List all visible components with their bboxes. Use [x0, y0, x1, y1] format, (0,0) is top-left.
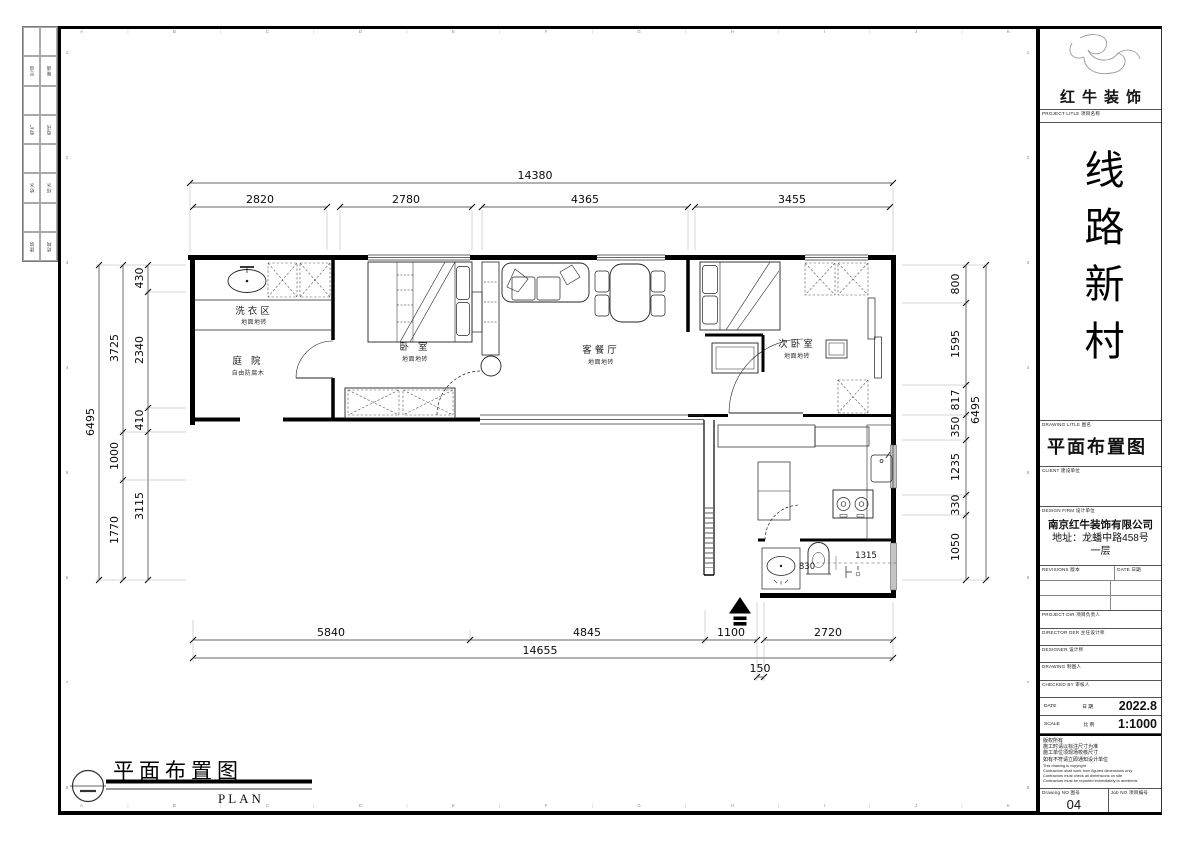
- job-no-label: Job NO 项目编号: [1109, 789, 1161, 797]
- dim-label: 3725: [108, 334, 121, 362]
- date-row: DATE 日 期 2022.8: [1040, 698, 1161, 716]
- bathroom-fixtures: [762, 543, 896, 590]
- scale-label-cn: 比 例: [1083, 721, 1094, 728]
- project-name-section: 线路新村: [1040, 123, 1161, 421]
- number-row: Drawing NO 图号 04 Job NO 项目编号: [1040, 789, 1161, 812]
- kitchen-fixtures: [718, 425, 893, 540]
- room-finish: 地面地砖: [241, 318, 267, 326]
- dim-label: 5840: [317, 626, 345, 639]
- drawing-no-value: 04: [1040, 797, 1108, 812]
- footer-title: 平面布置图: [113, 759, 243, 783]
- dim-label: 1050: [949, 533, 962, 561]
- drawing-title: 平面布置图: [1040, 429, 1161, 459]
- living-dining-furniture: [502, 263, 665, 322]
- scale-label-en: SCALE: [1044, 722, 1060, 727]
- date-label-cn: 日 期: [1082, 703, 1093, 710]
- footer-subtitle: PLAN: [218, 791, 264, 806]
- project-label: PROJECT LITLE 项目名称: [1040, 110, 1161, 118]
- drawing-sheet: 空调 暖通 电气 电讯 给水 排水 建筑 结构 A|B|C|D|E|F|G|H|…: [0, 0, 1200, 852]
- room-finish: 地面地砖: [588, 358, 614, 366]
- floor-plan-svg: 14380 2820 2780 4365 3455 5840 4845 1100…: [0, 0, 1200, 852]
- dim-label: 350: [949, 417, 962, 438]
- room-name: 庭 院: [232, 355, 263, 367]
- copyright-line: Contractors must be reported immediately…: [1043, 778, 1158, 783]
- second-bedroom-furniture: [700, 262, 882, 413]
- dim-label: 1000: [108, 442, 121, 470]
- dim-label: 6495: [84, 408, 97, 436]
- drawing-title-label: DRAWING LITLE 图名: [1040, 421, 1161, 429]
- checked-by-label: CHECKED BY 审核人: [1040, 681, 1161, 689]
- room-labels: 洗衣区 地面地砖 庭 院 自由防腐木 卧 室 地面地砖 客餐厅 地面地砖 次卧室…: [232, 305, 816, 377]
- dim-label: 3115: [133, 492, 146, 520]
- dim-label: 2780: [392, 193, 420, 206]
- company-logo-icon: [1046, 30, 1156, 86]
- dim-label: 1315: [855, 551, 877, 561]
- dim-label: 14655: [523, 644, 558, 657]
- room-name: 次卧室: [778, 338, 816, 350]
- firm-name: 南京红牛装饰有限公司: [1040, 517, 1161, 532]
- dimension-labels: 14380 2820 2780 4365 3455 5840 4845 1100…: [84, 169, 982, 675]
- dim-label: 14380: [518, 169, 553, 182]
- revisions-date-label: DATE 日期: [1115, 566, 1161, 580]
- room-finish: 地面地砖: [402, 355, 428, 363]
- dim-label: 430: [133, 268, 146, 289]
- dim-label: 150: [750, 662, 771, 675]
- dim-label: 1770: [108, 516, 121, 544]
- copyright-block: 版权所有 施工时请以标注尺寸为准 施工单位须现场校核尺寸 如有不符请立即通知设计…: [1040, 734, 1161, 789]
- revisions-label: REVISIONS 版本: [1040, 566, 1115, 580]
- revisions-table: REVISIONS 版本DATE 日期: [1040, 566, 1161, 611]
- dim-label: 4845: [573, 626, 601, 639]
- title-block: 红牛装饰 PROJECT LITLE 项目名称 线路新村 DRAWING LIT…: [1036, 26, 1162, 815]
- bedroom-furniture: [345, 262, 501, 418]
- scale-row: SCALE 比 例 1:1000: [1040, 716, 1161, 734]
- dim-label: 2720: [814, 626, 842, 639]
- entrance-arrow-icon: [729, 597, 751, 626]
- dim-label: 2340: [133, 336, 146, 364]
- date-value: 2022.8: [1119, 699, 1157, 713]
- drawing-no-label: Drawing NO 图号: [1040, 789, 1108, 797]
- dim-label: 3455: [778, 193, 806, 206]
- firm-address: 地址：龙蟠中路458号一层: [1040, 532, 1161, 558]
- dim-label: 800: [949, 274, 962, 295]
- client-label: CLIENT 建设单位: [1040, 467, 1161, 475]
- company-name: 红牛装饰: [1053, 86, 1148, 107]
- firm-label: DESIGN FIRM 设计单位: [1040, 507, 1161, 515]
- dim-label: 4365: [571, 193, 599, 206]
- dim-label: 1235: [949, 453, 962, 481]
- scale-value: 1:1000: [1118, 717, 1157, 731]
- date-label-en: DATE: [1044, 704, 1056, 709]
- director-label: DIRECTOR DER 主任设计师: [1040, 629, 1161, 637]
- dim-label: 1100: [717, 626, 745, 639]
- project-dir-label: PROJECT DIR 项目负责人: [1040, 611, 1161, 619]
- dim-label: 2820: [246, 193, 274, 206]
- dim-label: 330: [949, 495, 962, 516]
- dim-label: 6495: [969, 396, 982, 424]
- project-name: 线路新村: [1072, 149, 1130, 377]
- room-name: 洗衣区: [235, 305, 273, 317]
- drawing-title-section: DRAWING LITLE 图名 平面布置图: [1040, 421, 1161, 467]
- dim-label: 830: [799, 562, 815, 572]
- design-firm-section: DESIGN FIRM 设计单位 南京红牛装饰有限公司 地址：龙蟠中路458号一…: [1040, 507, 1161, 566]
- footer-title-group: 平面布置图 PLAN: [70, 759, 312, 806]
- dim-label: 817: [949, 390, 962, 411]
- drawing-by-label: DRAWING 制图人: [1040, 663, 1161, 671]
- room-name: 卧 室: [399, 341, 430, 353]
- walls: [188, 255, 896, 598]
- room-finish: 自由防腐木: [232, 369, 265, 377]
- dim-label: 410: [133, 410, 146, 431]
- company-header: 红牛装饰: [1040, 29, 1161, 110]
- dim-label: 1595: [949, 330, 962, 358]
- designer-label: DESIGNER 设计师: [1040, 646, 1161, 654]
- room-finish: 地面地砖: [784, 352, 810, 360]
- room-name: 客餐厅: [582, 344, 620, 356]
